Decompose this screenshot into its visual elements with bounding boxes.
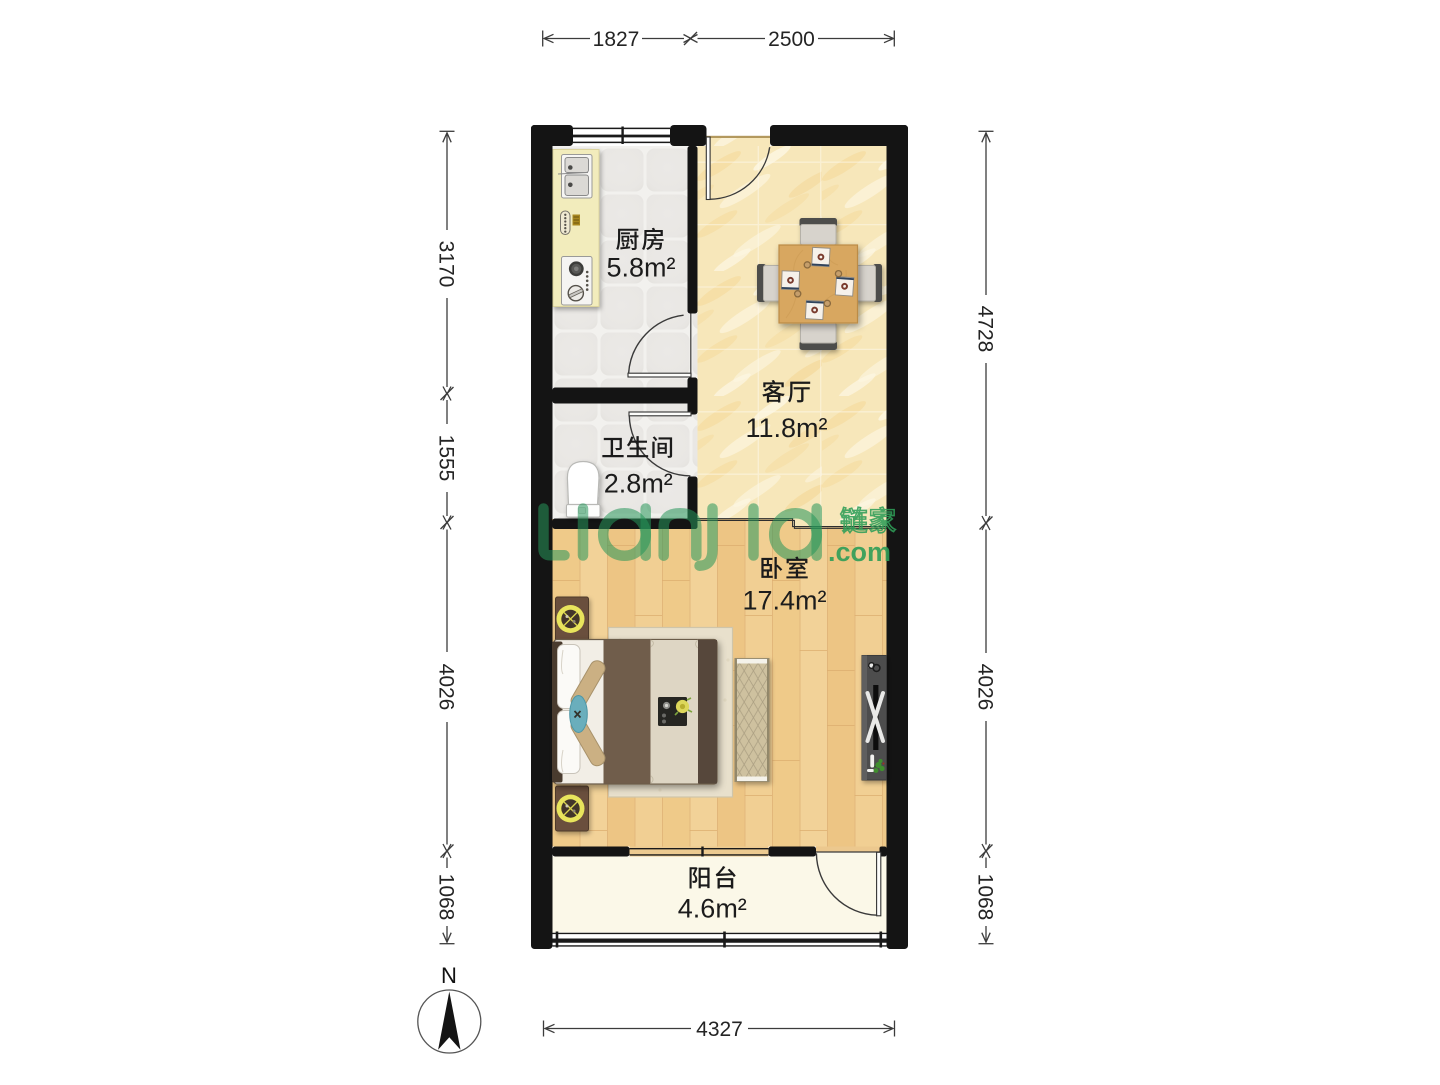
svg-text:4327: 4327	[696, 1018, 743, 1041]
svg-text:2.8m²: 2.8m²	[604, 469, 673, 499]
svg-text:.com: .com	[828, 537, 891, 567]
svg-text:3170: 3170	[434, 241, 457, 288]
svg-text:1068: 1068	[434, 874, 457, 921]
svg-text:4026: 4026	[973, 664, 996, 711]
svg-text:1068: 1068	[973, 874, 996, 921]
svg-text:1555: 1555	[434, 435, 457, 482]
svg-text:4026: 4026	[434, 664, 457, 711]
svg-text:2500: 2500	[768, 28, 815, 51]
svg-text:4728: 4728	[973, 306, 996, 353]
svg-text:5.8m²: 5.8m²	[606, 253, 675, 283]
svg-text:N: N	[441, 963, 457, 988]
svg-text:17.4m²: 17.4m²	[742, 586, 826, 616]
svg-text:1827: 1827	[593, 28, 640, 51]
svg-text:11.8m²: 11.8m²	[745, 413, 827, 443]
svg-text:4.6m²: 4.6m²	[678, 894, 747, 924]
